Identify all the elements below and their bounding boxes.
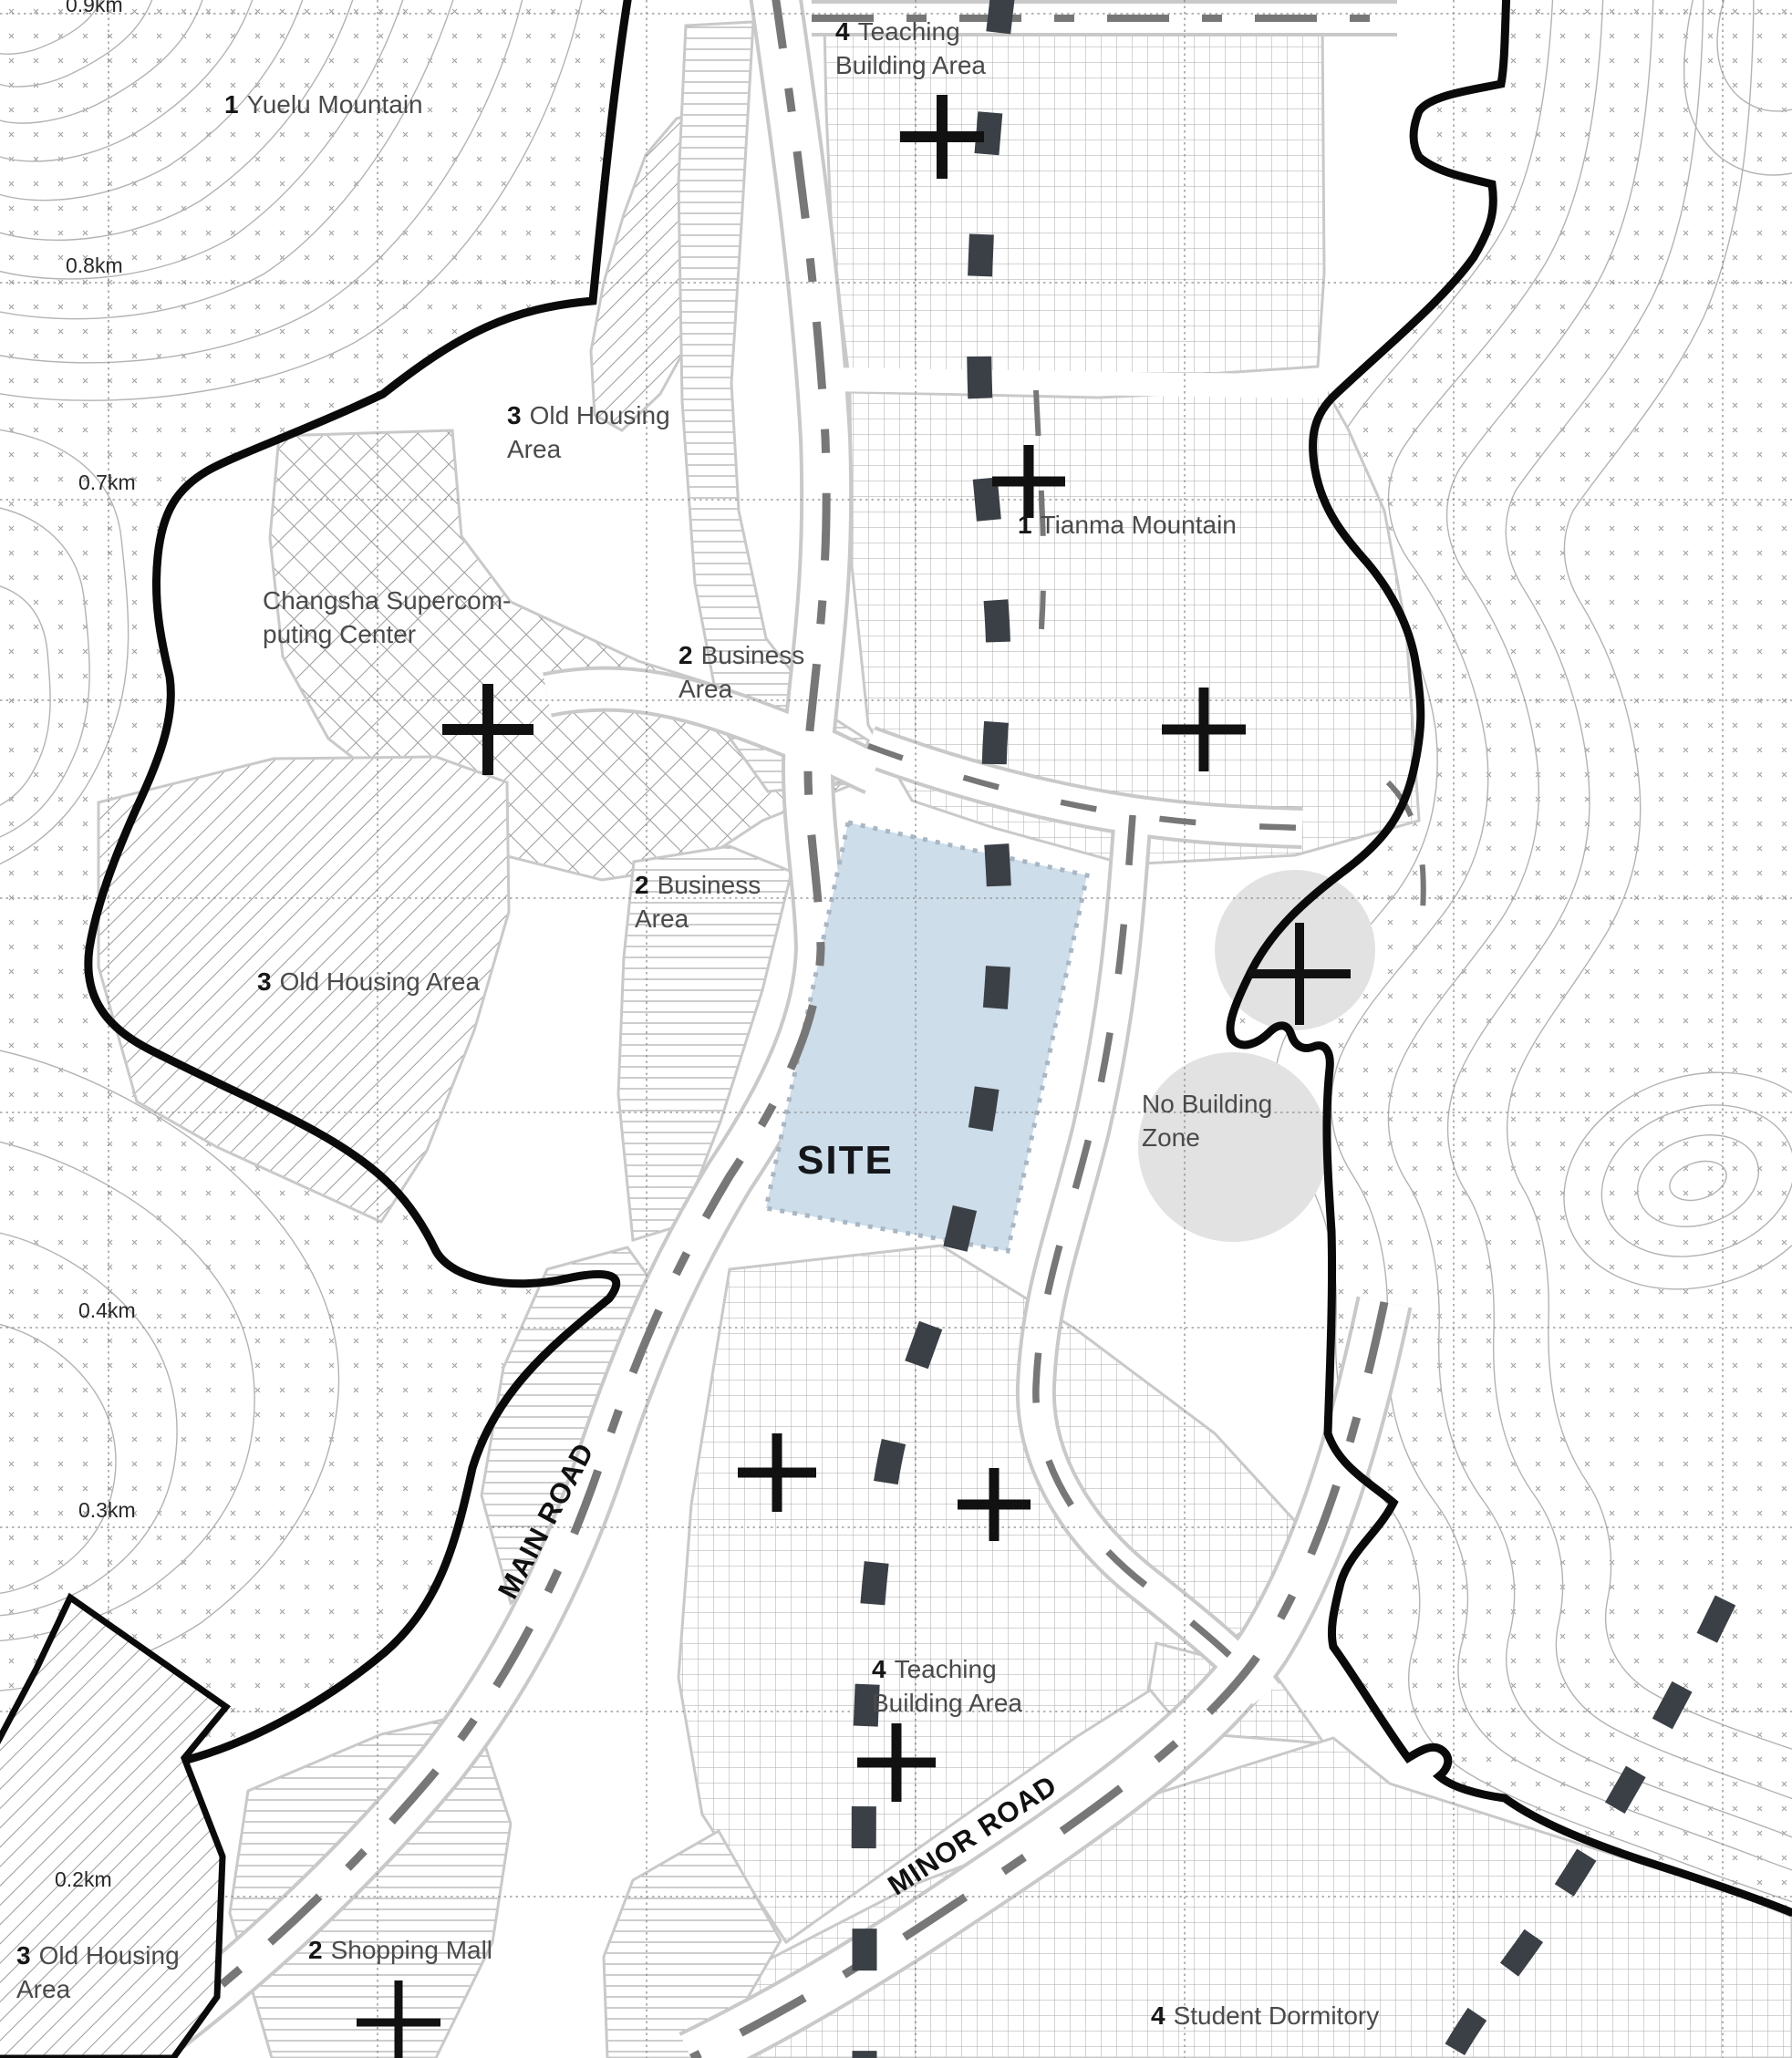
label-teaching-north: 4Teaching Building Area (835, 15, 986, 82)
scale-label-0-3km: 0.3km (78, 1498, 136, 1522)
label-business-south: 2Business Area (635, 868, 761, 936)
map-canvas (0, 0, 1792, 2058)
scale-label-0-9km: 0.9km (66, 0, 123, 16)
label-teaching-south: 4Teaching Building Area (872, 1652, 1022, 1720)
label-old-housing-south: 3Old Housing Area (16, 1939, 180, 2006)
label-yuelu-mountain: 1Yuelu Mountain (224, 88, 423, 121)
label-supercomputing-center: Changsha Supercom- puting Center (263, 584, 511, 651)
teaching-north-grid-b (850, 387, 1419, 864)
label-old-housing-mid: 3Old Housing Area (257, 965, 480, 998)
label-shopping-mall: 2Shopping Mall (308, 1933, 492, 1967)
scale-label-0-7km: 0.7km (78, 471, 136, 494)
label-site: SITE (797, 1138, 894, 1184)
label-business-north: 2Business Area (678, 638, 804, 706)
site-analysis-map: 0.9km 0.8km 0.7km 0.4km 0.3km 0.2km 1Yue… (0, 0, 1792, 2058)
label-tianma-mountain: 1Tianma Mountain (1018, 508, 1237, 542)
label-student-dormitory: 4Student Dormitory (1151, 1999, 1379, 2032)
label-old-housing-north: 3Old Housing Area (507, 398, 670, 466)
scale-label-0-2km: 0.2km (55, 1867, 112, 1891)
scale-label-0-8km: 0.8km (66, 253, 123, 277)
label-no-building-zone: No Building Zone (1142, 1087, 1272, 1154)
scale-label-0-4km: 0.4km (78, 1298, 136, 1322)
